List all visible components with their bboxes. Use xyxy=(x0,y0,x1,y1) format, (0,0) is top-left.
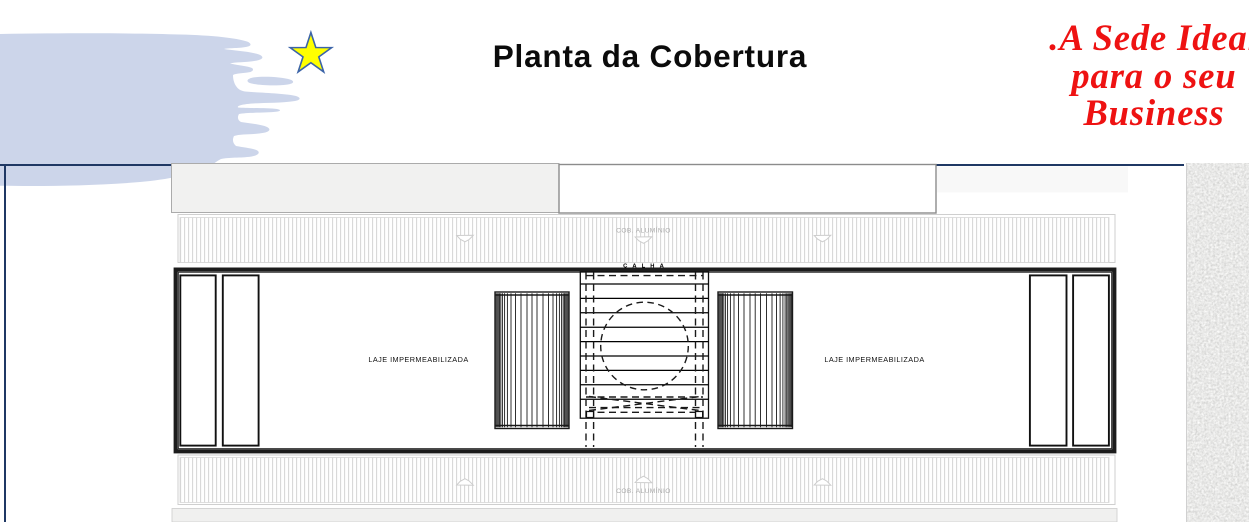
svg-text:LAJE IMPERMEABILIZADA: LAJE IMPERMEABILIZADA xyxy=(824,355,924,364)
svg-text:COB. ALUMÍNIO: COB. ALUMÍNIO xyxy=(616,486,671,495)
svg-text:LAJE IMPERMEABILIZADA: LAJE IMPERMEABILIZADA xyxy=(368,355,468,364)
svg-text:COB. ALUMÍNIO: COB. ALUMÍNIO xyxy=(616,226,671,235)
